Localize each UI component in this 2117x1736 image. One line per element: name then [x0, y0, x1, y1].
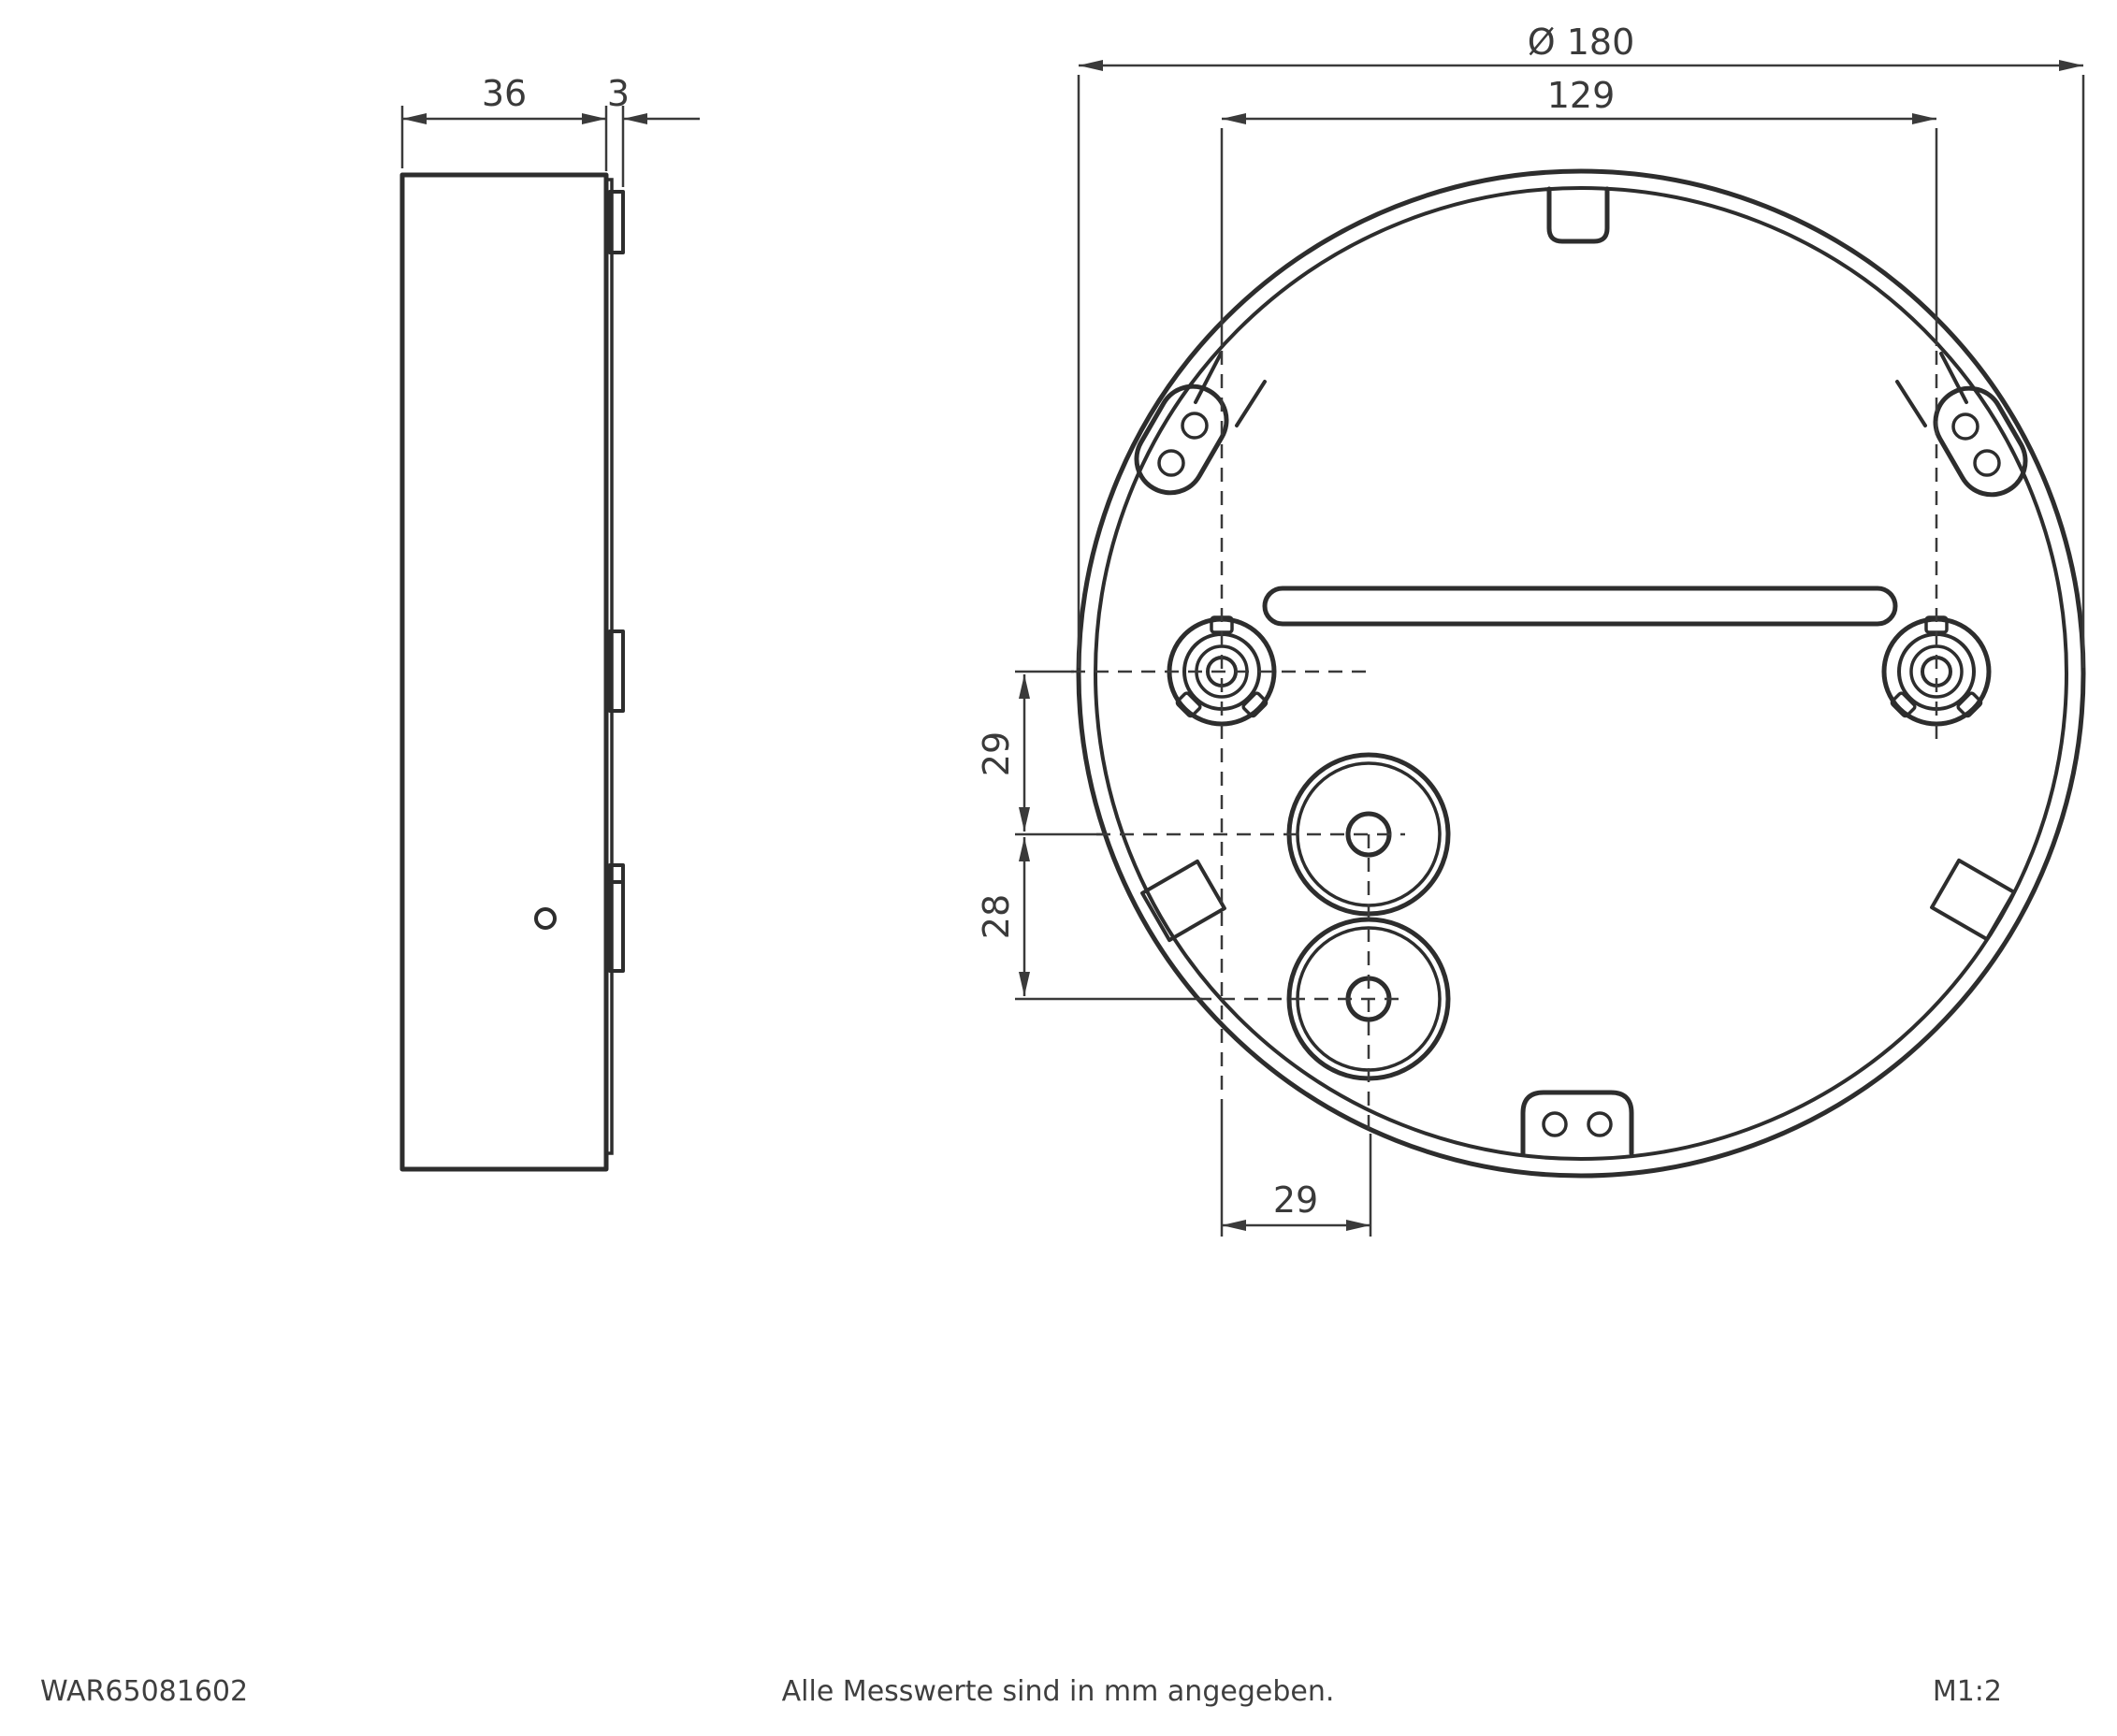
- arrowhead-right: [582, 113, 606, 124]
- arrowhead-left: [623, 113, 647, 124]
- dim-label-diameter: Ø 180: [1528, 22, 1635, 63]
- arrowhead-left: [1079, 60, 1103, 71]
- dim-29-horizontal: 29: [1222, 1104, 1370, 1237]
- arrowhead-left: [1222, 1220, 1246, 1231]
- dim-label-3: 3: [607, 73, 630, 114]
- dim-label-29-bottom: 29: [1273, 1179, 1318, 1221]
- dim-3: 3: [607, 73, 700, 187]
- side-tab-left: [1142, 861, 1225, 940]
- arrowhead-left: [402, 113, 427, 124]
- top-alignment-tab: [1549, 189, 1607, 241]
- keyhole-neck-line: [1237, 382, 1265, 426]
- screw-post-lug: [1891, 692, 1916, 717]
- keyhole-hole: [1182, 413, 1207, 438]
- dim-label-129: 129: [1547, 75, 1616, 116]
- pilot-hole: [536, 909, 555, 928]
- bottom-tab-hole-right: [1588, 1113, 1611, 1136]
- front-view: [1071, 171, 2083, 1176]
- arrowhead-bottom: [1019, 807, 1030, 832]
- arrowhead-bottom: [1019, 972, 1030, 996]
- base-plate-outer-circle: [1079, 171, 2083, 1176]
- screw-post-lug: [1176, 692, 1201, 717]
- dim-label-36: 36: [482, 73, 527, 114]
- dim-label-28: 28: [976, 894, 1017, 939]
- side-view-body: [402, 175, 606, 1169]
- keyhole-hole: [1159, 451, 1183, 475]
- scale-label: M1:2: [1933, 1675, 2002, 1708]
- technical-drawing: 36 3: [0, 0, 2117, 1736]
- keyhole-neck-line: [1897, 382, 1925, 426]
- keyhole-slot-outline: [1124, 374, 1239, 505]
- arrowhead-right: [2059, 60, 2083, 71]
- screw-post-lug: [1242, 692, 1268, 717]
- footer-note: Alle Messwerte sind in mm angegeben.: [782, 1675, 1335, 1708]
- dim-28-vertical: 28: [976, 837, 1202, 999]
- side-tab-right-rect: [1932, 861, 2014, 939]
- technical-drawing-sheet: 36 3: [0, 0, 2117, 1736]
- footer: WAR65081602 Alle Messwerte sind in mm an…: [40, 1675, 2002, 1708]
- side-view: [402, 175, 623, 1169]
- bottom-tab-outline: [1523, 1092, 1631, 1153]
- dim-label-29-top: 29: [976, 731, 1017, 776]
- side-tab-right: [1932, 861, 2014, 939]
- keyhole-hole: [1975, 451, 1999, 475]
- arrowhead-right: [1912, 113, 1936, 124]
- arrowhead-right: [1346, 1220, 1370, 1231]
- bottom-tab-hole-left: [1544, 1113, 1566, 1136]
- dim-129: 129: [1222, 75, 1936, 346]
- part-number: WAR65081602: [40, 1675, 248, 1708]
- keyhole-slot-left: [1124, 354, 1265, 505]
- arrowhead-left: [1222, 113, 1246, 124]
- center-slot: [1265, 588, 1895, 624]
- dim-36: 36: [402, 73, 606, 171]
- screw-post-lug: [1957, 692, 1982, 717]
- side-tab-left-rect: [1142, 861, 1225, 940]
- centerlines: [1071, 351, 1936, 1134]
- arrowhead-top: [1019, 837, 1030, 861]
- bottom-tab: [1523, 1092, 1631, 1153]
- keyhole-hole: [1953, 414, 1978, 439]
- arrowhead-top: [1019, 674, 1030, 699]
